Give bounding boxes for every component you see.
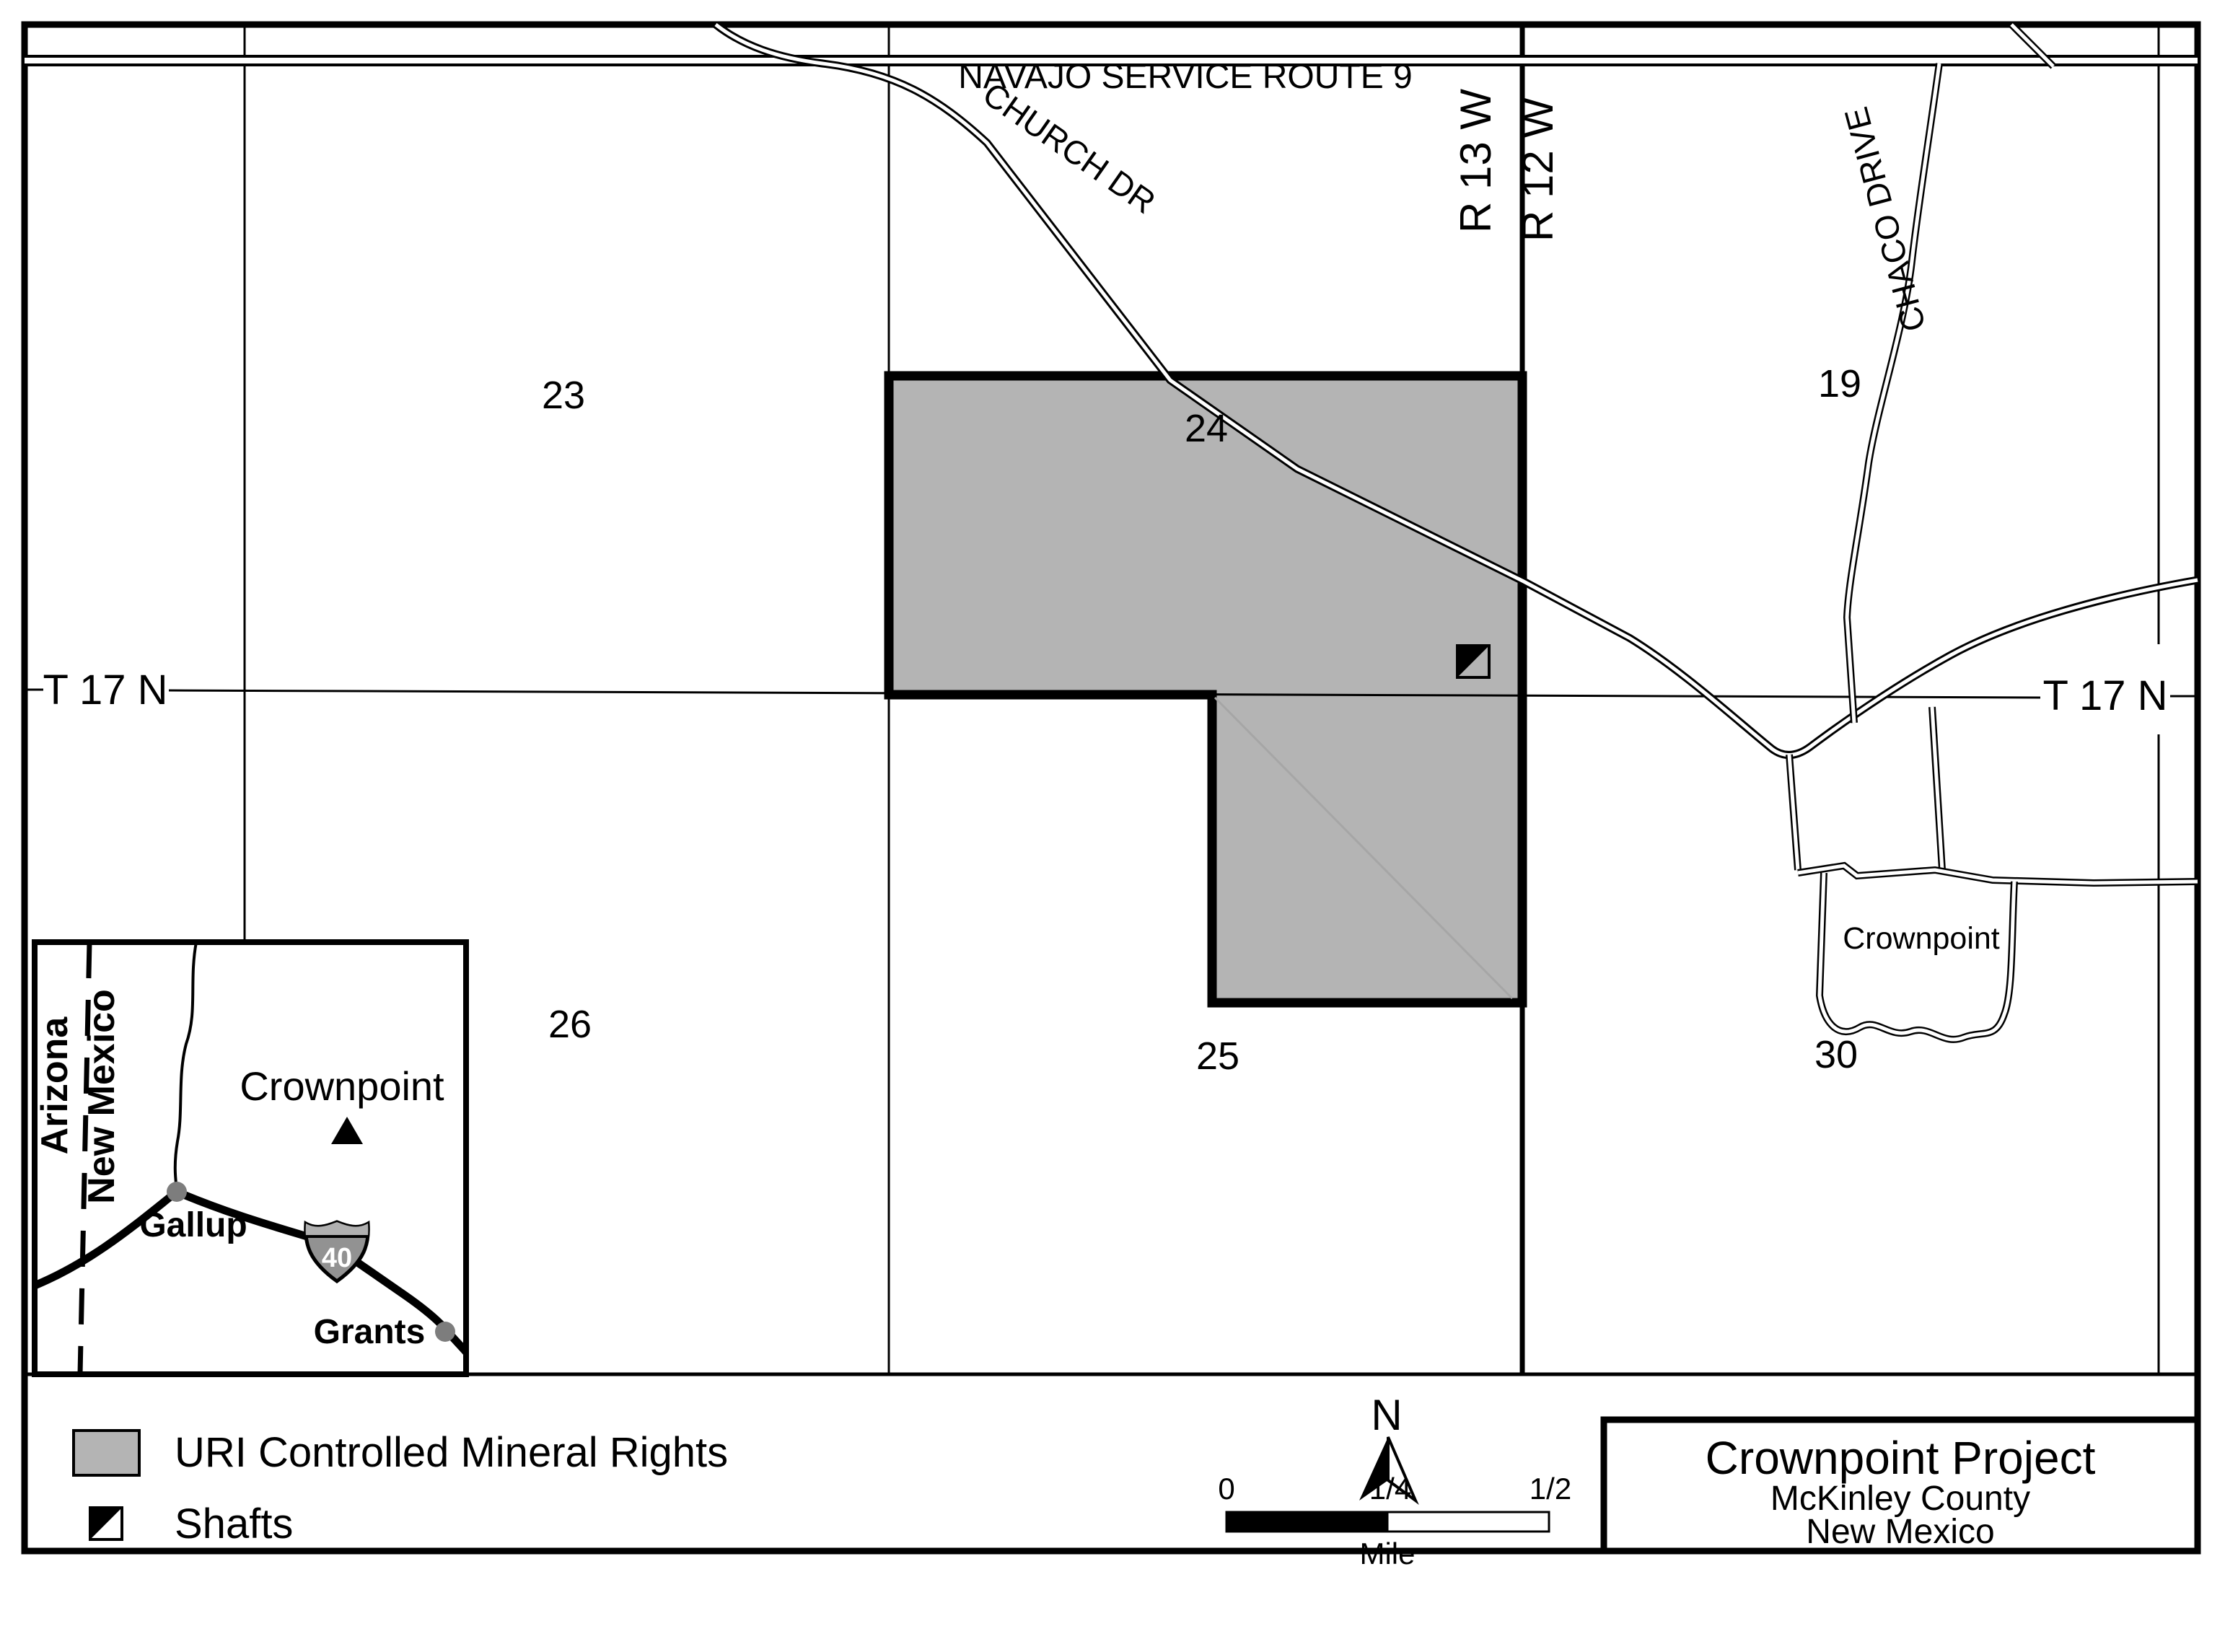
scale-unit-label: Mile	[1359, 1537, 1415, 1570]
section-24-label: 24	[1185, 407, 1228, 450]
new-mexico-label: New Mexico	[81, 989, 123, 1204]
legend-shafts-label: Shafts	[175, 1501, 293, 1547]
legend-uri-swatch	[74, 1431, 139, 1475]
range-label-west: R 13 W	[1452, 89, 1500, 233]
north-label: N	[1371, 1391, 1402, 1439]
legend-shaft-symbol	[90, 1508, 122, 1539]
interstate-40-label: 40	[322, 1243, 352, 1273]
inset-map: 40 Arizona New Mexico Crownpoint Gallup …	[34, 942, 466, 1374]
township-label-left: T 17 N	[43, 667, 167, 713]
map-sheet: NAVAJO SERVICE ROUTE 9 CHURCH DR CHACO D…	[0, 0, 2225, 1652]
grants-dot	[435, 1322, 455, 1342]
gallup-label: Gallup	[139, 1206, 247, 1244]
grants-label: Grants	[314, 1313, 426, 1351]
section-30-label: 30	[1814, 1033, 1858, 1076]
navajo-route9-label: NAVAJO SERVICE ROUTE 9	[958, 58, 1412, 96]
section-26-label: 26	[548, 1003, 592, 1046]
scale-bar-white-segment	[1387, 1512, 1549, 1532]
scale-tick-0: 0	[1218, 1472, 1234, 1506]
range-label-east: R 12 W	[1514, 97, 1562, 242]
section-19-label: 19	[1818, 362, 1861, 405]
section-25-label: 25	[1196, 1034, 1239, 1078]
title-block: Crownpoint Project McKinley County New M…	[1604, 1420, 2198, 1551]
legend-uri-label: URI Controlled Mineral Rights	[175, 1429, 728, 1476]
gallup-dot	[167, 1182, 187, 1202]
section-23-label: 23	[542, 374, 585, 417]
crownpoint-town-label: Crownpoint	[1843, 921, 2000, 956]
arizona-label: Arizona	[34, 1016, 76, 1155]
scale-bar-black-segment	[1226, 1512, 1387, 1532]
township-label-right: T 17 N	[2042, 672, 2167, 719]
scale-tick-half: 1/2	[1530, 1472, 1571, 1506]
crownpoint-project-map: NAVAJO SERVICE ROUTE 9 CHURCH DR CHACO D…	[0, 0, 2225, 1652]
inset-crownpoint-label: Crownpoint	[240, 1063, 444, 1109]
scale-tick-quarter: 1/4	[1369, 1472, 1411, 1506]
title-block-title: Crownpoint Project	[1706, 1432, 2096, 1484]
title-block-state: New Mexico	[1806, 1513, 1994, 1551]
